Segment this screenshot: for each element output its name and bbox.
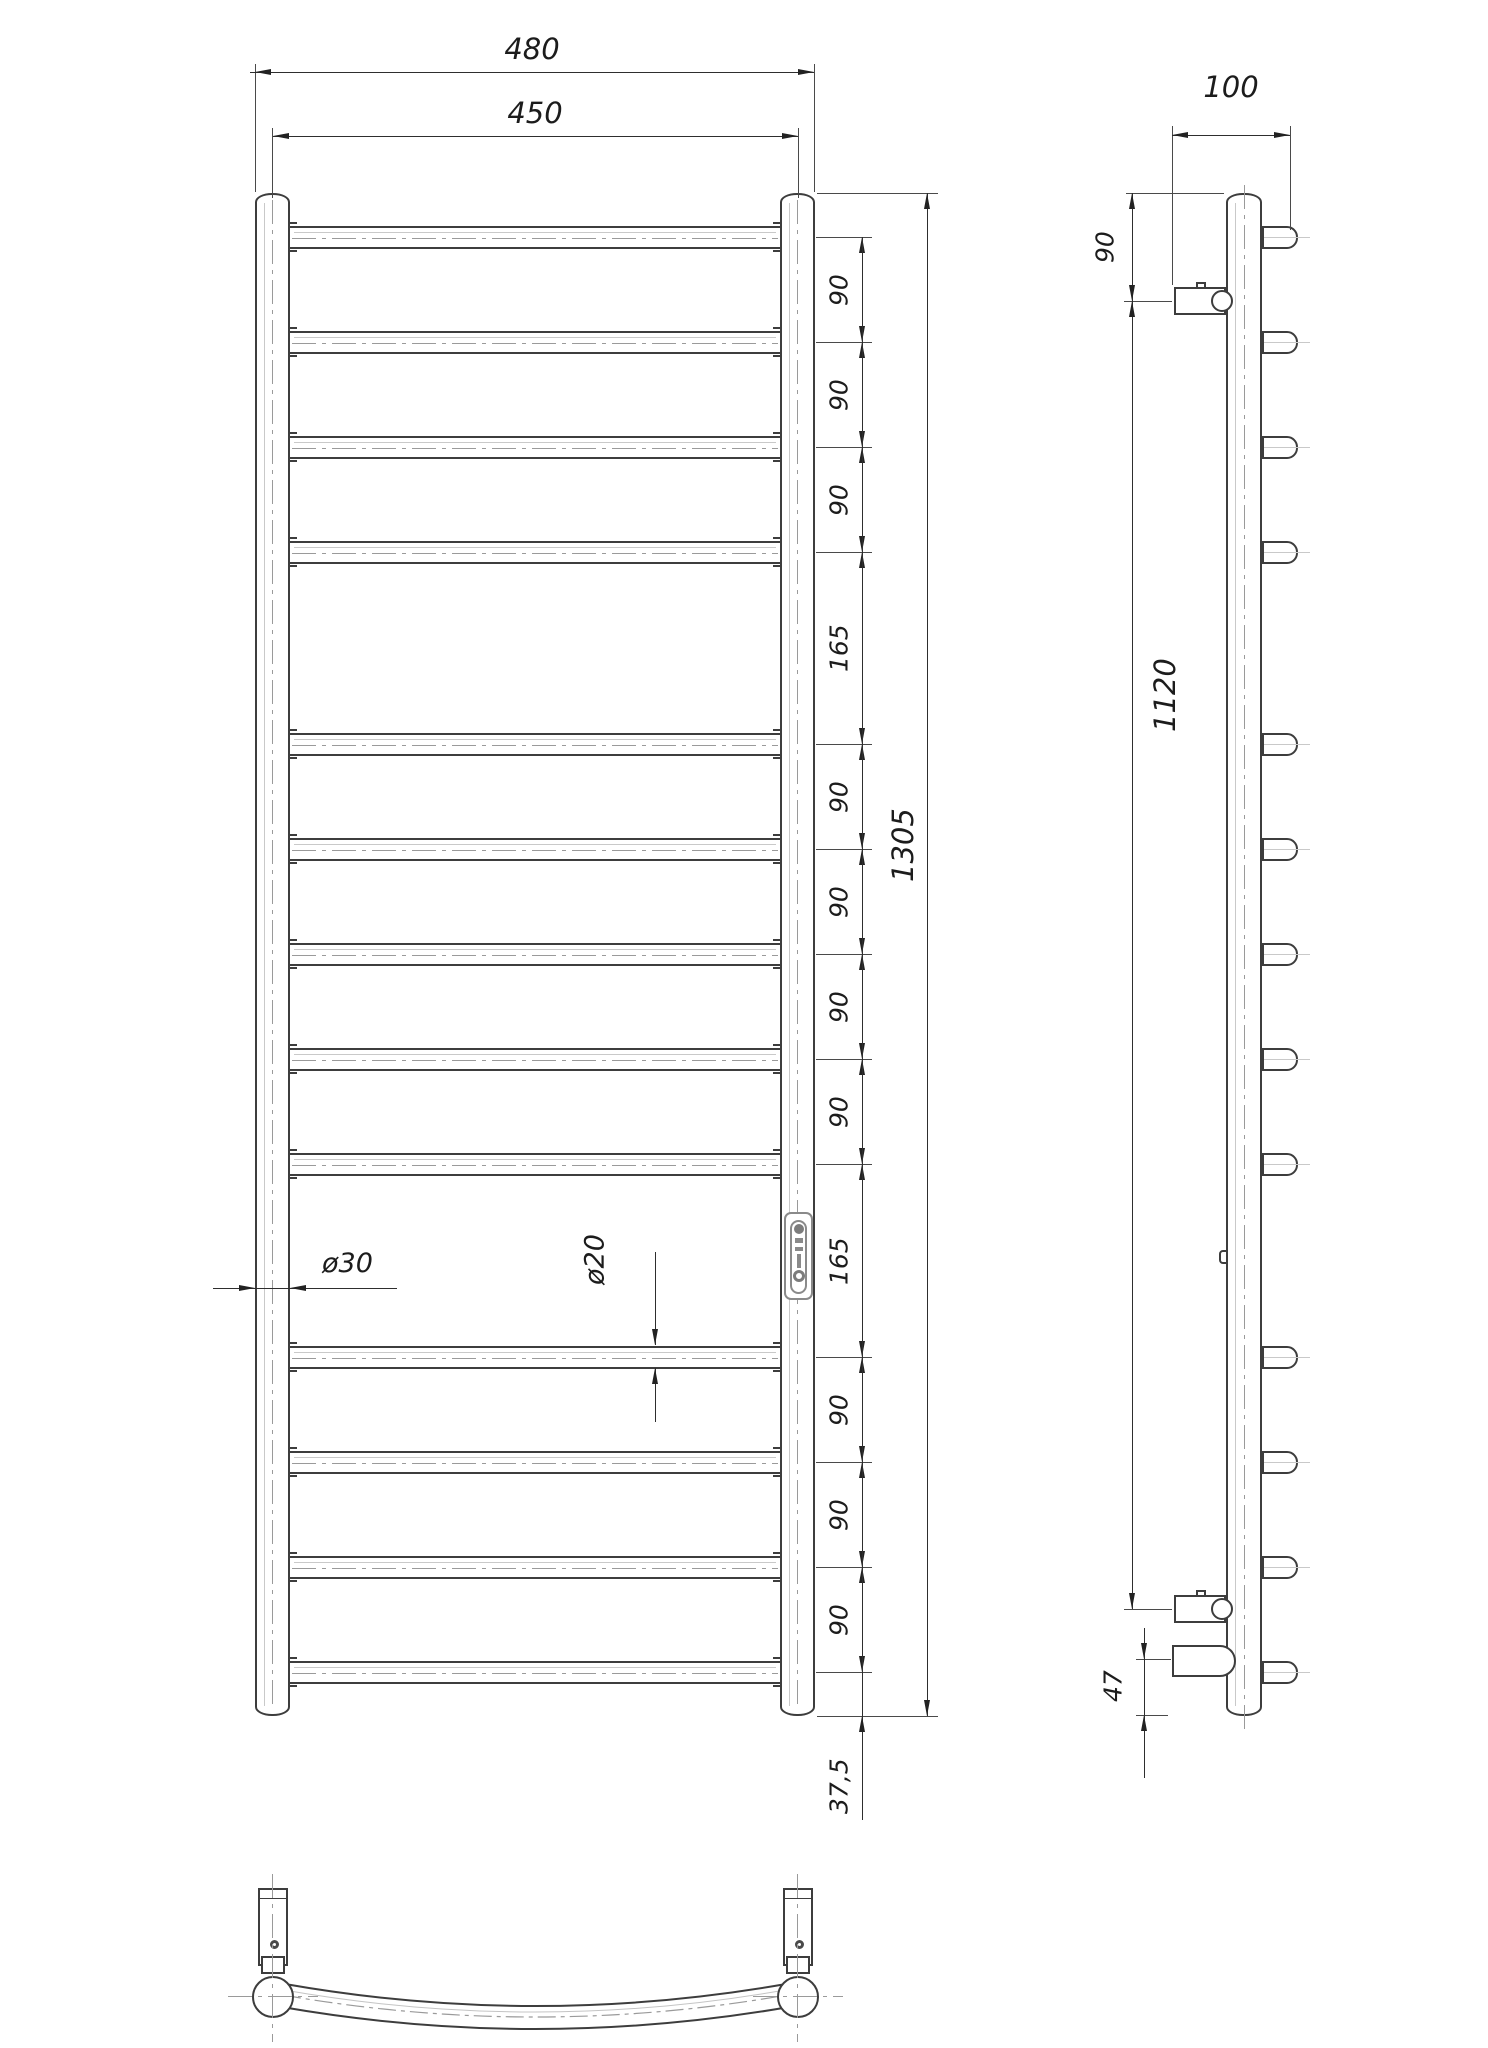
- side-post-centerline: [1244, 185, 1245, 1730]
- rung-centerline: [292, 955, 778, 956]
- rung: [288, 541, 782, 564]
- stub-centerline: [1264, 954, 1310, 955]
- dim-depth-label: 100: [1186, 70, 1276, 104]
- rung-centerline: [292, 745, 778, 746]
- lower-bracket-cap: [1211, 1598, 1233, 1620]
- rung: [288, 436, 782, 459]
- rung-centerline: [292, 1358, 778, 1359]
- dim-tube-diameter-label: ø20: [574, 1200, 616, 1320]
- rung-centerline: [292, 1568, 778, 1569]
- chain-dimension-label: 90: [820, 1052, 858, 1172]
- right-post-section: [777, 1976, 819, 2018]
- curved-rung-profile: [240, 1958, 840, 2048]
- chain-dimension-label: 165: [820, 588, 858, 708]
- rung-centerline: [292, 1060, 778, 1061]
- chain-dimension-label: 90: [820, 1350, 858, 1470]
- dim-bracket-span-label: 1120: [1144, 630, 1186, 760]
- dim-width-axes-label: 450: [490, 96, 580, 130]
- dim-top-to-bracket-label: 90: [1086, 187, 1124, 307]
- chain-dimension-label: 90: [820, 737, 858, 857]
- chain-dimension-label: 90: [820, 335, 858, 455]
- dim-height-overall-label: 1305: [882, 780, 924, 910]
- rung-centerline: [292, 238, 778, 239]
- stub-centerline: [1264, 744, 1310, 745]
- dim-line-100: [1172, 135, 1290, 136]
- rung: [288, 226, 782, 249]
- logo-bottom-ring: [793, 1270, 805, 1282]
- chain-dimension-label: 90: [820, 230, 858, 350]
- dim-outlet-to-bottom-label: 47: [1094, 1626, 1132, 1746]
- chain-dimension-label: 90: [820, 440, 858, 560]
- chain-dimension-label: 90: [820, 842, 858, 962]
- stub-centerline: [1264, 1462, 1310, 1463]
- dim-line-1305: [927, 193, 928, 1716]
- rung-centerline: [292, 343, 778, 344]
- stub-centerline: [1264, 1059, 1310, 1060]
- rung: [288, 943, 782, 966]
- rung-centerline: [292, 553, 778, 554]
- rung: [288, 331, 782, 354]
- stub-centerline: [1264, 342, 1310, 343]
- dim-post-diameter-label: ø30: [322, 1248, 373, 1279]
- rung-centerline: [292, 1165, 778, 1166]
- left-post-section: [252, 1976, 294, 2018]
- chain-extension-line: [816, 1672, 872, 1673]
- chain-dimension-label: 90: [820, 1560, 858, 1680]
- stub-centerline: [1264, 237, 1310, 238]
- logo-top-dot: [794, 1224, 804, 1234]
- dim-bottom-offset-label: 37,5: [820, 1726, 858, 1846]
- stub-centerline: [1264, 1672, 1310, 1673]
- right-post-centerline: [797, 200, 798, 1710]
- bottom-view-left-bracket: [258, 1888, 288, 1966]
- stub-centerline: [1264, 447, 1310, 448]
- rung-centerline: [292, 1463, 778, 1464]
- rung: [288, 1451, 782, 1474]
- rung-centerline: [292, 448, 778, 449]
- rung-centerline: [292, 850, 778, 851]
- rung: [288, 733, 782, 756]
- towel-rail-technical-drawing: 90909016590909090165909090 480: [0, 0, 1488, 2048]
- stub-centerline: [1264, 1567, 1310, 1568]
- stub-centerline: [1264, 1357, 1310, 1358]
- stub-centerline: [1264, 849, 1310, 850]
- rung: [288, 1661, 782, 1684]
- side-logo-bump: [1219, 1250, 1228, 1264]
- rung: [288, 1346, 782, 1369]
- stub-centerline: [1264, 552, 1310, 553]
- dim-width-overall-label: 480: [487, 32, 577, 66]
- chain-dimension-label: 90: [820, 1455, 858, 1575]
- bottom-outlet-fitting: [1172, 1645, 1236, 1677]
- rung: [288, 1556, 782, 1579]
- rung: [288, 1048, 782, 1071]
- bottom-view-right-bracket: [783, 1888, 813, 1966]
- left-post-centerline: [272, 200, 273, 1710]
- rung: [288, 1153, 782, 1176]
- chain-dimension-label: 165: [820, 1201, 858, 1321]
- chain-dimension-label: 90: [820, 947, 858, 1067]
- brand-logo-badge: [784, 1212, 813, 1300]
- upper-bracket-cap: [1211, 290, 1233, 312]
- dim-line-480: [250, 72, 814, 73]
- dim-line-450: [273, 136, 798, 137]
- rung-centerline: [292, 1673, 778, 1674]
- dim-line-1120: [1132, 301, 1133, 1609]
- rung: [288, 838, 782, 861]
- dim-line-chain: [862, 237, 863, 1820]
- stub-centerline: [1264, 1164, 1310, 1165]
